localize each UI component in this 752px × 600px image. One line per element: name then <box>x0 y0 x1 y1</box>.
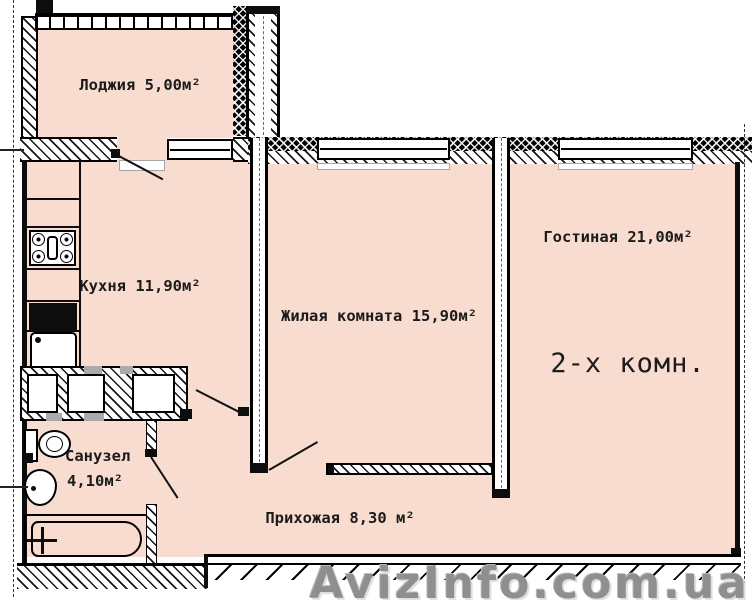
room-label-bathroom-area: 4,10м² <box>67 472 123 490</box>
room-label-lounge: Гостиная 21,00м² <box>543 228 692 246</box>
vent-shaft-wall <box>20 366 188 421</box>
faucet-icon <box>41 527 44 554</box>
step-wall-centerline <box>263 6 264 140</box>
step-wall-cap <box>246 6 280 14</box>
wall-centerline <box>501 138 502 498</box>
wall-centerline <box>259 138 260 472</box>
counter-divider <box>27 268 80 270</box>
window-mullion <box>561 148 690 150</box>
counter-divider <box>27 226 80 228</box>
step-wall-hatch-left <box>249 12 255 140</box>
room-label-loggia: Лоджия 5,00м² <box>79 76 200 94</box>
window-mullion <box>320 148 447 150</box>
kitchen-living-wall <box>250 138 268 472</box>
bathtub-icon <box>24 514 152 566</box>
kitchen-door-frame-block <box>180 409 192 419</box>
bottom-wall-thick <box>17 563 207 589</box>
room-label-bathroom: Санузел <box>65 447 130 465</box>
axis-tick <box>0 486 28 488</box>
axis-line-right <box>744 124 745 584</box>
kitchen-sink-icon <box>29 303 77 330</box>
lounge-window-sill <box>558 163 693 170</box>
bathroom-wall-lower <box>146 504 157 568</box>
loggia-bottom-wall-left <box>20 137 117 162</box>
living-room-window <box>317 138 450 160</box>
counter-divider <box>27 300 80 302</box>
bottom-wall-step <box>204 554 208 588</box>
apartment-type-label: 2-х комн. <box>550 348 705 379</box>
living-lounge-wall-cap <box>492 489 510 498</box>
stove-icon <box>29 230 76 266</box>
watermark-text: AvizInfo.com.ua <box>309 558 750 600</box>
counter-edge-line <box>79 162 81 368</box>
axis-tick <box>0 149 24 151</box>
vent-shaft <box>27 374 58 413</box>
floor-plan: Лоджия 5,00м² Кухня 11,90м² Жилая комнат… <box>0 0 752 600</box>
hall-living-partition <box>326 463 493 475</box>
room-label-kitchen: Кухня 11,90м² <box>79 277 200 295</box>
living-door-hinge <box>250 463 268 473</box>
right-exterior-wall <box>735 162 740 556</box>
step-wall <box>246 6 280 140</box>
vent-shaft <box>132 374 175 413</box>
room-label-hallway: Прихожая 8,30 м² <box>265 509 414 527</box>
toilet-base-icon <box>22 453 33 463</box>
step-wall-hatch-right <box>271 12 277 140</box>
lounge-window <box>558 138 693 160</box>
loggia-window <box>167 139 233 160</box>
vent-shaft <box>67 374 105 413</box>
living-lounge-wall <box>492 138 510 498</box>
counter-divider <box>27 198 80 200</box>
corner-block-topleft <box>36 0 53 13</box>
loggia-left-wall <box>21 16 38 140</box>
loggia-glazing-rail <box>35 13 252 30</box>
balcony-door-hinge <box>111 149 120 158</box>
left-exterior-wall <box>22 160 27 565</box>
window-mullion <box>170 149 230 151</box>
axis-line-left <box>13 0 14 597</box>
room-label-living-room: Жилая комната 15,90м² <box>281 307 477 325</box>
living-room-window-sill <box>317 163 450 170</box>
